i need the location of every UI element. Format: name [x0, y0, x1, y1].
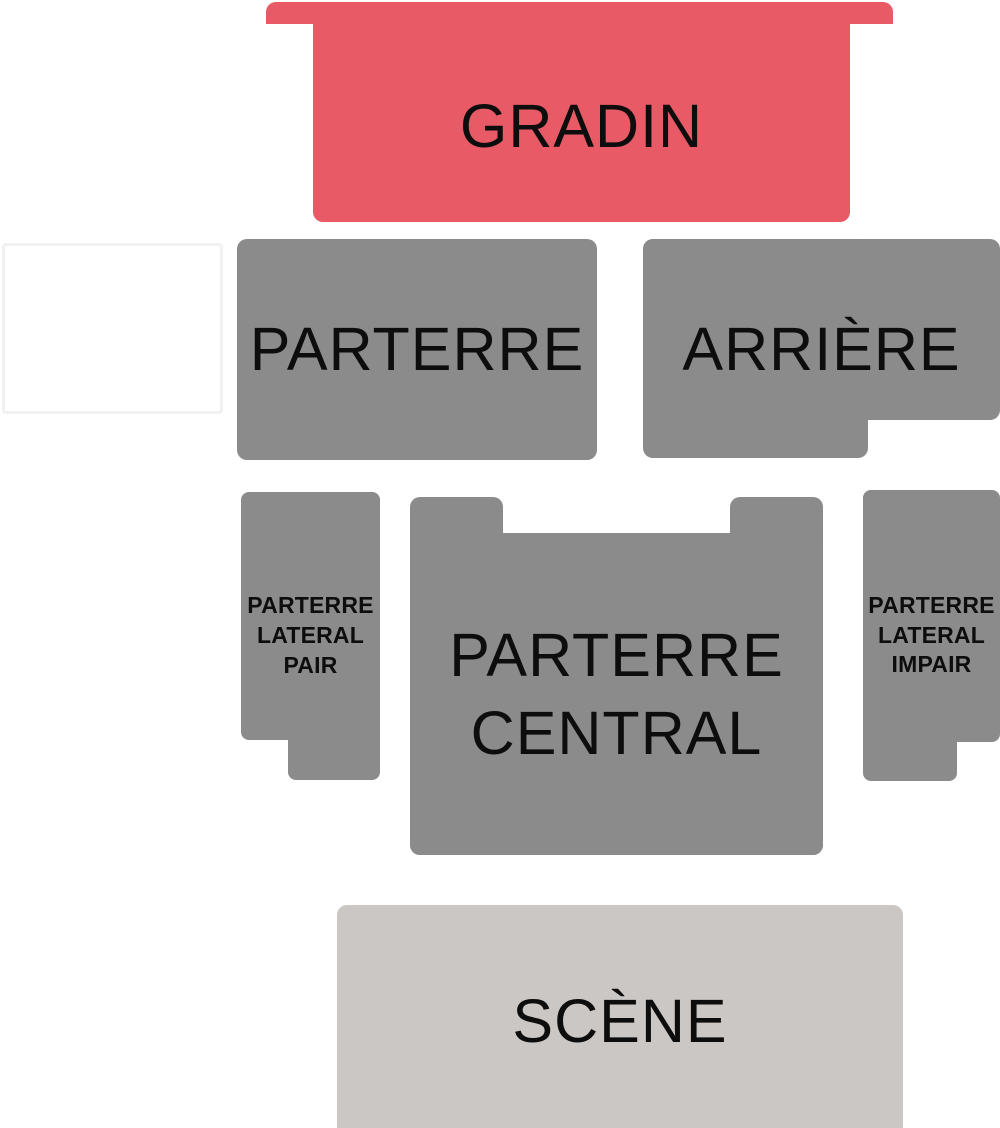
parterre-central-label: PARTERRE CENTRAL: [410, 533, 823, 855]
parterre-label: PARTERRE: [237, 239, 597, 460]
gradin-label: GRADIN: [313, 2, 850, 222]
arriere-label: ARRIÈRE: [643, 239, 1000, 460]
parterre-lateral-impair-label: PARTERRE LATERAL IMPAIR: [863, 490, 1000, 781]
parterre-lateral-pair-label: PARTERRE LATERAL PAIR: [241, 492, 380, 780]
scene-label: SCÈNE: [337, 905, 903, 1128]
seating-map: GRADIN PARTERRE ARRIÈRE PARTERRE LATERAL…: [0, 0, 1000, 1128]
empty-section-block: [2, 243, 223, 414]
